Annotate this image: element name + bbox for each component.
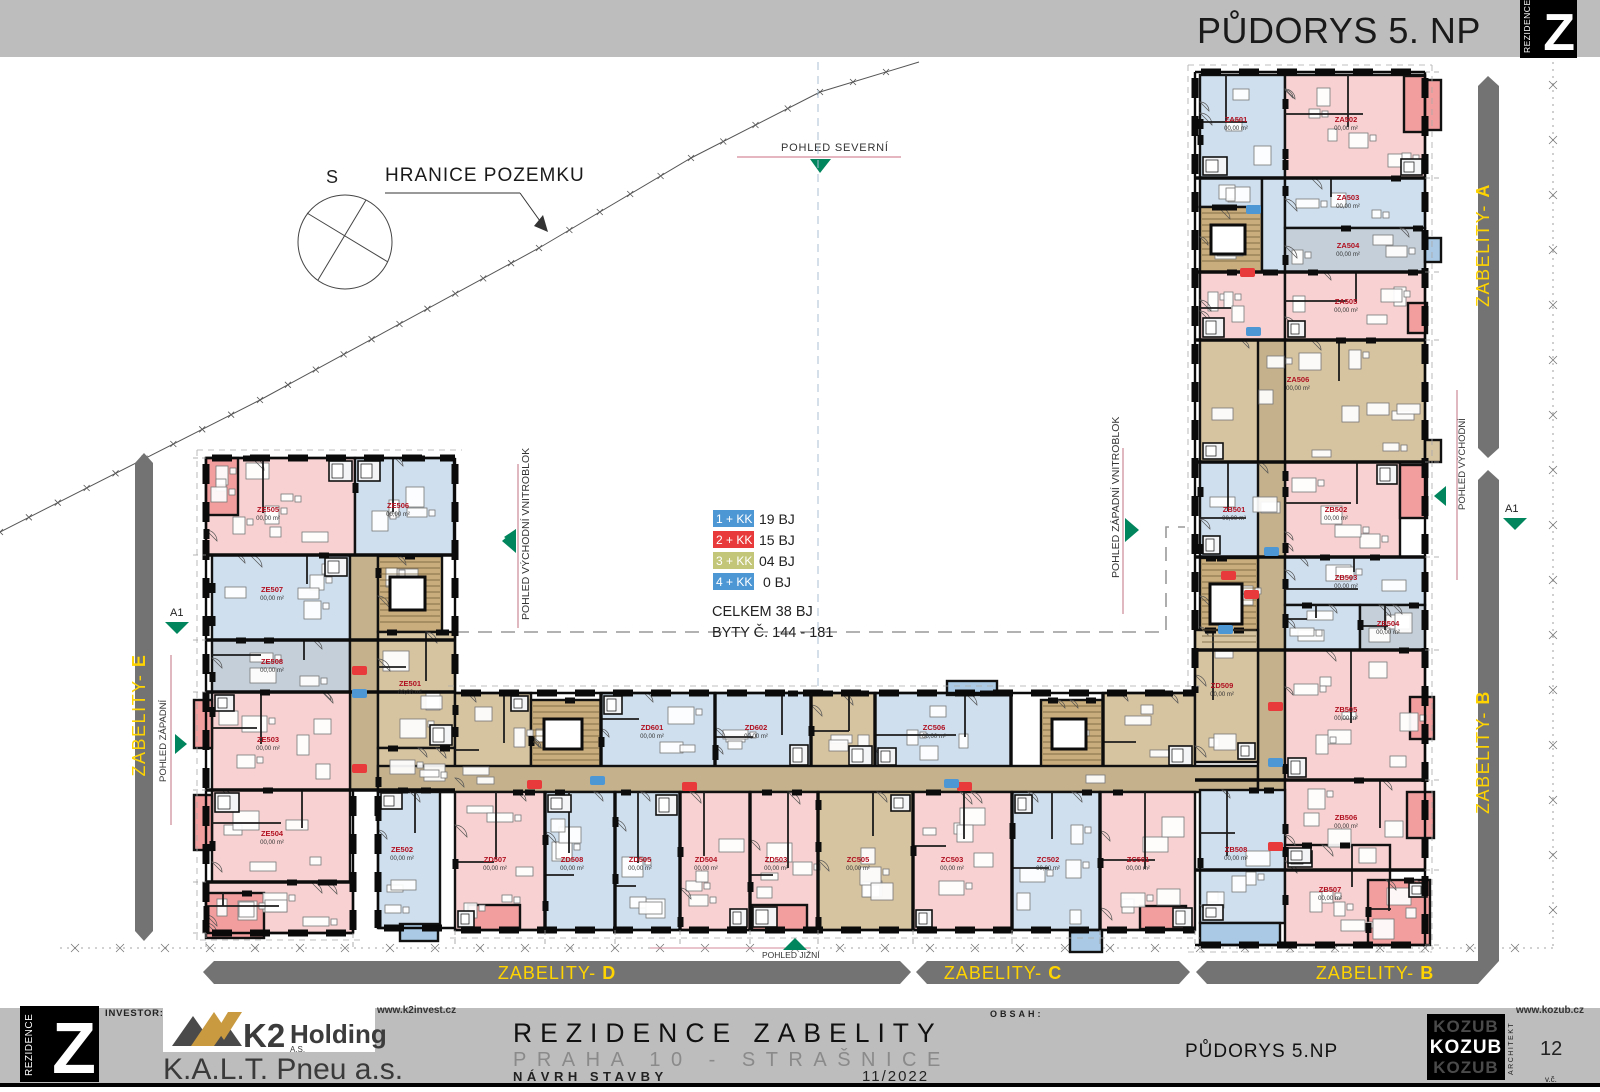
svg-text:ZB504: ZB504 [1377, 619, 1400, 628]
svg-text:ZD507: ZD507 [484, 855, 507, 864]
svg-text:00,00 m²: 00,00 m² [628, 866, 652, 872]
svg-text:v.č.: v.č. [1545, 1075, 1557, 1084]
svg-text:00,00 m²: 00,00 m² [398, 690, 422, 696]
svg-text:00,00 m²: 00,00 m² [1334, 716, 1358, 722]
svg-text:S: S [326, 167, 338, 187]
svg-text:ZD505: ZD505 [629, 855, 652, 864]
svg-text:ZE507: ZE507 [261, 585, 283, 594]
svg-text:00,00 m²: 00,00 m² [940, 866, 964, 872]
svg-text:ZB506: ZB506 [1335, 813, 1358, 822]
svg-text:00,00 m²: 00,00 m² [1126, 866, 1150, 872]
svg-text:K.A.L.T. Pneu a.s.: K.A.L.T. Pneu a.s. [163, 1053, 403, 1086]
svg-text:00,00 m²: 00,00 m² [1376, 630, 1400, 636]
svg-text:Z: Z [52, 1009, 96, 1087]
svg-text:00,00 m²: 00,00 m² [386, 512, 410, 518]
svg-text:ZABELITY- A: ZABELITY- A [1473, 183, 1493, 307]
svg-text:ZE501: ZE501 [399, 679, 421, 688]
svg-text:KOZUB: KOZUB [1433, 1058, 1498, 1077]
svg-text:ZE504: ZE504 [261, 829, 284, 838]
svg-text:ZB501: ZB501 [1223, 505, 1246, 514]
svg-text:ZC501: ZC501 [1127, 855, 1150, 864]
svg-text:ZABELITY- B: ZABELITY- B [1473, 690, 1493, 814]
svg-text:00,00 m²: 00,00 m² [640, 734, 664, 740]
svg-text:ZB507: ZB507 [1319, 885, 1342, 894]
svg-text:ZC503: ZC503 [941, 855, 964, 864]
svg-text:00,00 m²: 00,00 m² [256, 746, 280, 752]
svg-text:00,00 m²: 00,00 m² [694, 866, 718, 872]
svg-text:15 BJ: 15 BJ [759, 532, 795, 548]
svg-text:00,00 m²: 00,00 m² [1224, 126, 1248, 132]
svg-text:00,00 m²: 00,00 m² [1222, 516, 1246, 522]
svg-text:ZA504: ZA504 [1337, 241, 1360, 250]
svg-text:ZABELITY- E: ZABELITY- E [129, 654, 149, 777]
svg-text:PŮDORYS 5. NP: PŮDORYS 5. NP [1197, 9, 1481, 51]
svg-text:00,00 m²: 00,00 m² [256, 516, 280, 522]
svg-text:00,00 m²: 00,00 m² [1334, 584, 1358, 590]
svg-text:ZD509: ZD509 [1211, 681, 1234, 690]
svg-text:2 + KK: 2 + KK [716, 533, 752, 547]
svg-text:00,00 m²: 00,00 m² [1210, 692, 1234, 698]
svg-text:00,00 m²: 00,00 m² [1286, 386, 1310, 392]
svg-text:00,00 m²: 00,00 m² [560, 866, 584, 872]
svg-text:00,00 m²: 00,00 m² [846, 866, 870, 872]
svg-text:NÁVRH STAVBY: NÁVRH STAVBY [513, 1069, 668, 1084]
svg-text:ZA505: ZA505 [1335, 297, 1358, 306]
svg-text:ZE506: ZE506 [387, 501, 409, 510]
svg-text:ZB508: ZB508 [1225, 845, 1248, 854]
svg-text:www.k2invest.cz: www.k2invest.cz [376, 1005, 456, 1016]
svg-text:ZC505: ZC505 [847, 855, 870, 864]
svg-text:POHLED SEVERNÍ: POHLED SEVERNÍ [781, 141, 889, 154]
svg-text:Z: Z [1543, 4, 1575, 62]
svg-text:REZIDENCE: REZIDENCE [24, 1014, 35, 1076]
svg-text:ZE505: ZE505 [257, 505, 279, 514]
svg-text:00,00 m²: 00,00 m² [922, 734, 946, 740]
svg-text:ZABELITY- D: ZABELITY- D [498, 963, 616, 983]
svg-text:ZB505: ZB505 [1335, 705, 1358, 714]
svg-text:00,00 m²: 00,00 m² [1224, 856, 1248, 862]
svg-text:ZD508: ZD508 [561, 855, 584, 864]
svg-text:00,00 m²: 00,00 m² [1336, 204, 1360, 210]
svg-text:POHLED ZÁPADNÍ VNITROBLOK: POHLED ZÁPADNÍ VNITROBLOK [1109, 417, 1122, 578]
svg-text:ZA501: ZA501 [1225, 115, 1248, 124]
svg-text:ZABELITY- C: ZABELITY- C [944, 963, 1062, 983]
svg-text:04 BJ: 04 BJ [759, 553, 795, 569]
svg-text:HRANICE POZEMKU: HRANICE POZEMKU [385, 165, 585, 186]
svg-text:ZD504: ZD504 [695, 855, 718, 864]
svg-text:0 BJ: 0 BJ [763, 574, 791, 590]
svg-text:ZD601: ZD601 [641, 723, 664, 732]
svg-text:ZABELITY- B: ZABELITY- B [1316, 963, 1434, 983]
svg-text:A1: A1 [1505, 503, 1518, 515]
svg-text:00,00 m²: 00,00 m² [744, 734, 768, 740]
svg-text:ZA502: ZA502 [1335, 115, 1358, 124]
svg-text:www.kozub.cz: www.kozub.cz [1515, 1005, 1584, 1016]
svg-text:ZD602: ZD602 [745, 723, 768, 732]
svg-text:ZB502: ZB502 [1325, 505, 1348, 514]
svg-text:00,00 m²: 00,00 m² [260, 668, 284, 674]
svg-text:ZD503: ZD503 [765, 855, 788, 864]
svg-text:POHLED VÝCHODNÍ: POHLED VÝCHODNÍ [1457, 418, 1468, 510]
svg-text:4 + KK: 4 + KK [716, 575, 752, 589]
svg-text:PŮDORYS 5.NP: PŮDORYS 5.NP [1185, 1040, 1338, 1062]
svg-text:00,00 m²: 00,00 m² [390, 856, 414, 862]
svg-text:00,00 m²: 00,00 m² [1334, 824, 1358, 830]
svg-text:POHLED JIŽNÍ: POHLED JIŽNÍ [762, 950, 820, 960]
svg-text:12: 12 [1540, 1038, 1562, 1060]
svg-text:00,00 m²: 00,00 m² [260, 840, 284, 846]
svg-text:19 BJ: 19 BJ [759, 511, 795, 527]
svg-text:KOZUB: KOZUB [1430, 1037, 1503, 1058]
svg-text:ZA503: ZA503 [1337, 193, 1360, 202]
svg-text:REZIDENCE ZABELITY: REZIDENCE ZABELITY [513, 1018, 943, 1048]
svg-text:00,00 m²: 00,00 m² [1036, 866, 1060, 872]
svg-text:00,00 m²: 00,00 m² [1336, 252, 1360, 258]
svg-text:ZE502: ZE502 [391, 845, 413, 854]
svg-text:ZC502: ZC502 [1037, 855, 1060, 864]
svg-text:CELKEM 38 BJ: CELKEM 38 BJ [712, 604, 813, 620]
svg-text:3 + KK: 3 + KK [716, 554, 752, 568]
svg-text:00,00 m²: 00,00 m² [764, 866, 788, 872]
svg-text:00,00 m²: 00,00 m² [1334, 126, 1358, 132]
svg-text:1 + KK: 1 + KK [716, 512, 752, 526]
svg-text:POHLED VÝCHODNÍ VNITROBLOK: POHLED VÝCHODNÍ VNITROBLOK [519, 448, 532, 620]
svg-text:11/2022: 11/2022 [862, 1068, 929, 1085]
svg-text:BYTY Č. 144 - 181: BYTY Č. 144 - 181 [712, 624, 833, 641]
svg-text:A1: A1 [170, 607, 183, 619]
svg-text:POHLED ZÁPADNÍ: POHLED ZÁPADNÍ [158, 699, 169, 782]
svg-text:ZB503: ZB503 [1335, 573, 1358, 582]
svg-text:KOZUB: KOZUB [1433, 1017, 1498, 1036]
svg-text:INVESTOR:: INVESTOR: [105, 1008, 164, 1019]
svg-text:ZE508: ZE508 [261, 657, 283, 666]
svg-text:ZA506: ZA506 [1287, 375, 1310, 384]
svg-text:ZC506: ZC506 [923, 723, 946, 732]
svg-text:00,00 m²: 00,00 m² [260, 596, 284, 602]
svg-text:ZE503: ZE503 [257, 735, 279, 744]
svg-text:00,00 m²: 00,00 m² [1334, 308, 1358, 314]
svg-text:00,00 m²: 00,00 m² [1324, 516, 1348, 522]
svg-text:K2: K2 [243, 1017, 285, 1054]
svg-text:OBSAH:: OBSAH: [990, 1009, 1044, 1019]
svg-text:ARCHITEKT: ARCHITEKT [1508, 1022, 1515, 1075]
svg-text:00,00 m²: 00,00 m² [1318, 896, 1342, 902]
svg-text:00,00 m²: 00,00 m² [483, 866, 507, 872]
svg-text:REZIDENCE: REZIDENCE [1522, 0, 1532, 53]
